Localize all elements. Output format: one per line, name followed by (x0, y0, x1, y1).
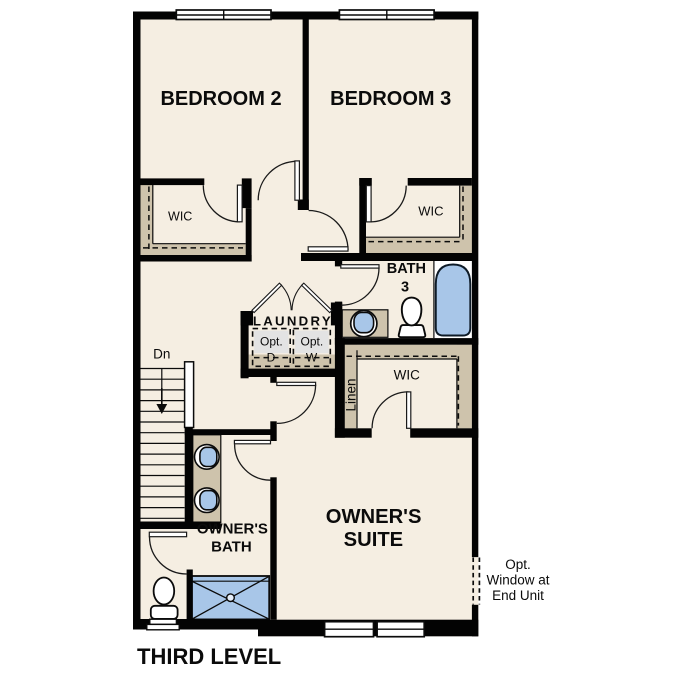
svg-text:Linen: Linen (344, 378, 359, 411)
svg-text:Opt.: Opt. (260, 335, 283, 349)
svg-text:End Unit: End Unit (492, 588, 544, 603)
svg-text:LAUNDRY: LAUNDRY (253, 313, 333, 328)
svg-text:BEDROOM 2: BEDROOM 2 (160, 88, 281, 110)
svg-text:BATH: BATH (211, 539, 252, 556)
svg-text:W: W (306, 351, 318, 365)
svg-text:BATH: BATH (387, 261, 426, 277)
svg-text:WIC: WIC (418, 203, 443, 218)
svg-text:Window at: Window at (486, 572, 549, 587)
svg-text:OWNER'S: OWNER'S (197, 521, 268, 538)
svg-text:Dn: Dn (153, 347, 170, 362)
svg-text:THIRD LEVEL: THIRD LEVEL (137, 644, 281, 669)
svg-text:Opt.: Opt. (301, 335, 324, 349)
svg-text:Opt.: Opt. (505, 557, 531, 572)
svg-text:SUITE: SUITE (344, 529, 403, 551)
svg-text:WIC: WIC (394, 368, 420, 383)
svg-text:3: 3 (401, 280, 409, 296)
svg-text:BEDROOM 3: BEDROOM 3 (330, 88, 451, 110)
svg-text:OWNER'S: OWNER'S (326, 506, 422, 528)
svg-text:D: D (267, 351, 276, 365)
svg-text:WIC: WIC (168, 209, 192, 223)
